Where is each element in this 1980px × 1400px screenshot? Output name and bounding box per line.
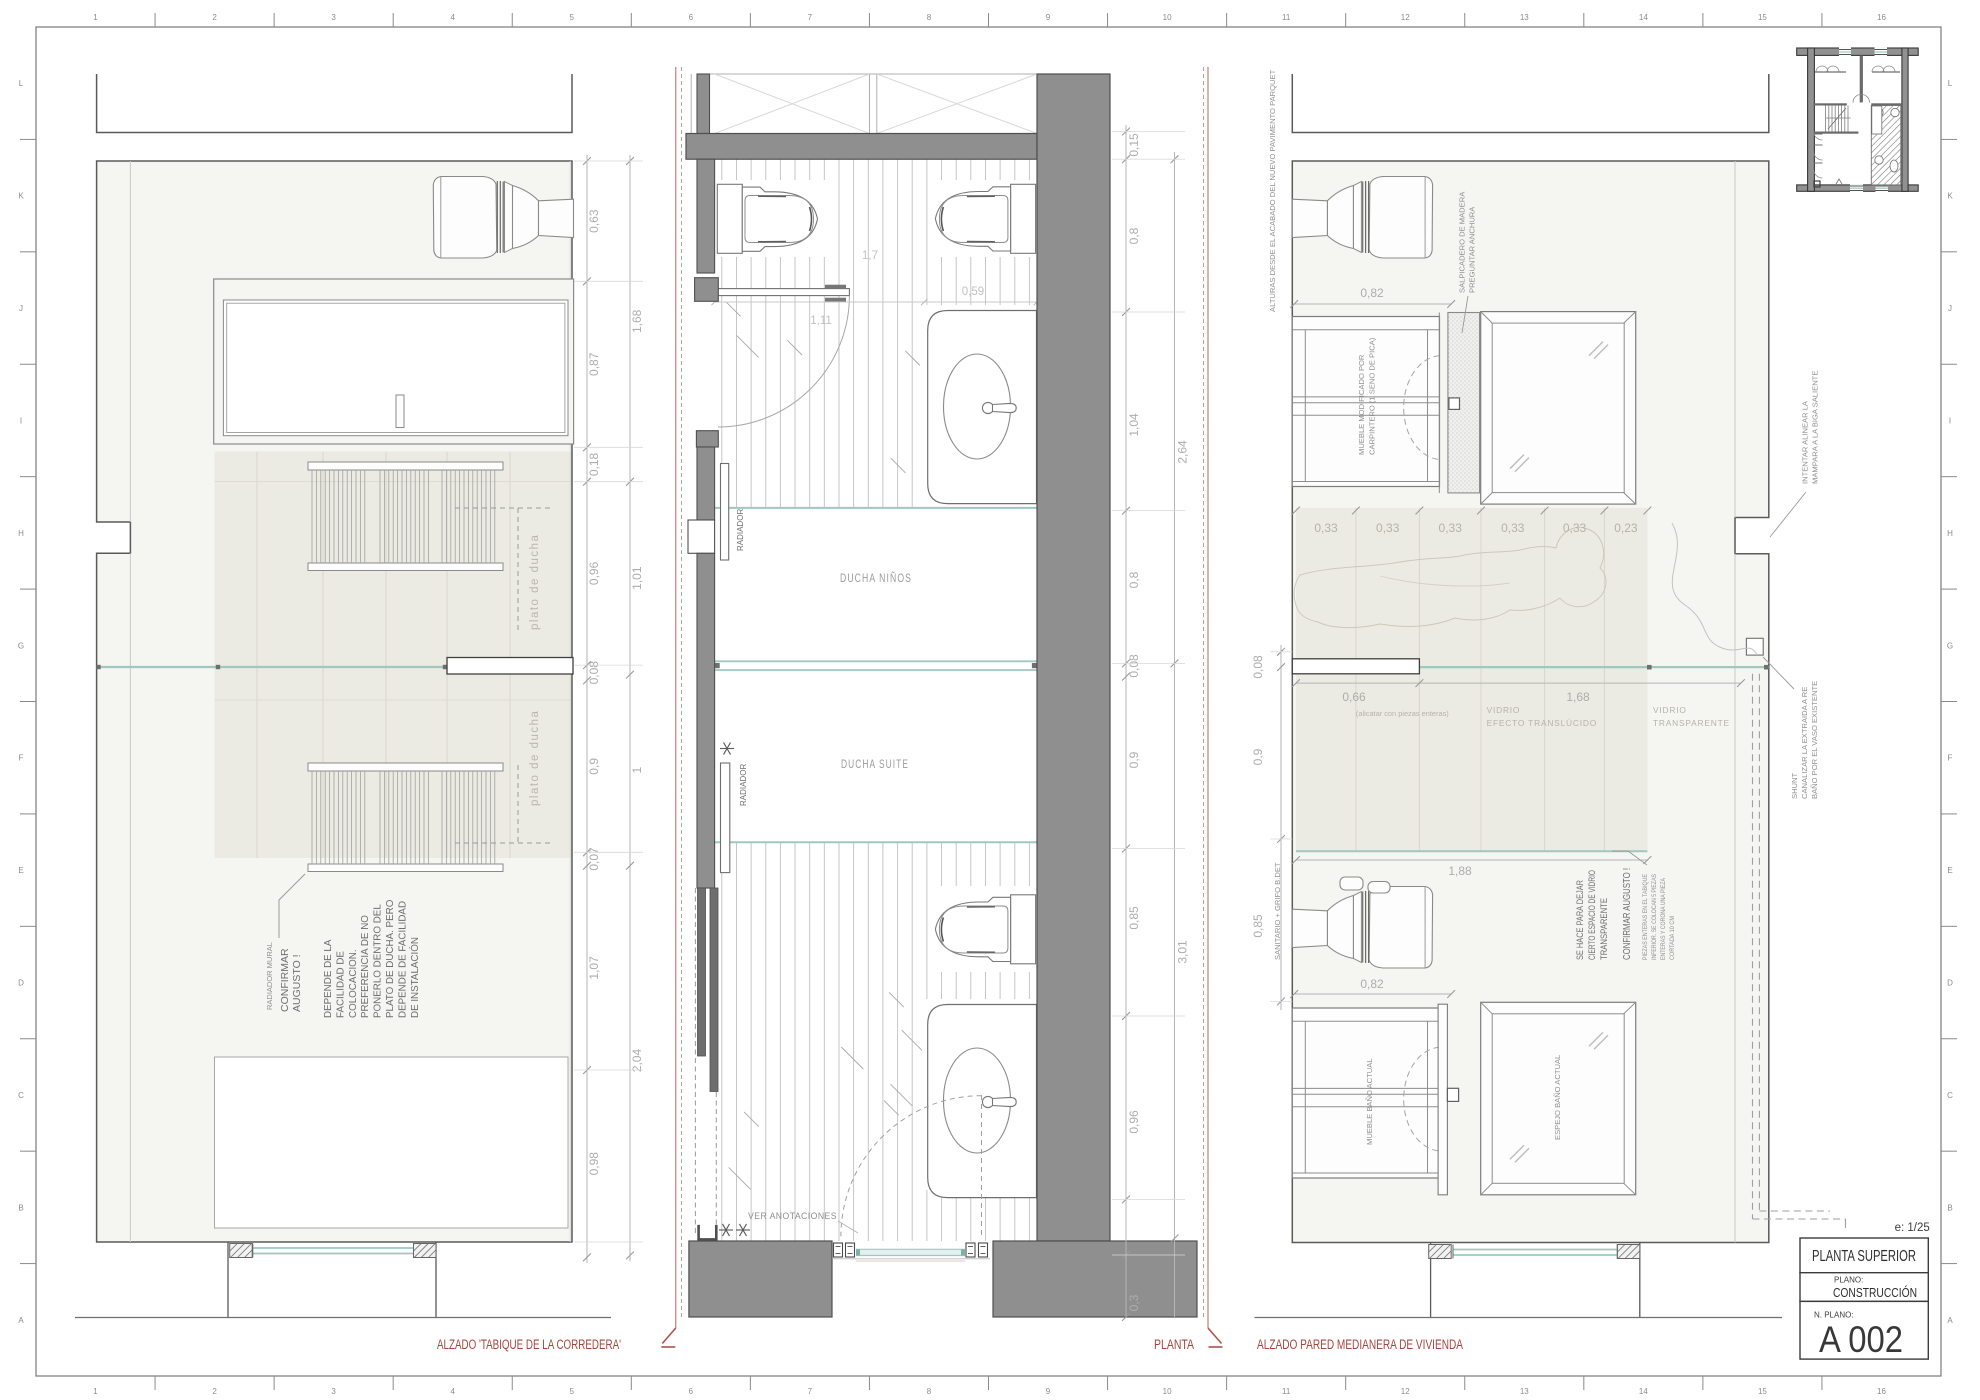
svg-text:RADIADOR: RADIADOR	[736, 509, 745, 551]
svg-text:1,11: 1,11	[810, 315, 832, 327]
svg-text:0,33: 0,33	[1563, 521, 1587, 535]
svg-text:0,87: 0,87	[587, 352, 601, 376]
svg-text:A: A	[1947, 1316, 1953, 1325]
svg-text:8: 8	[927, 13, 932, 22]
svg-text:0,82: 0,82	[1360, 977, 1384, 991]
svg-text:PLANTA SUPERIOR: PLANTA SUPERIOR	[1812, 1248, 1916, 1265]
svg-text:14: 14	[1639, 1387, 1648, 1396]
svg-text:1,88: 1,88	[1448, 864, 1472, 878]
svg-text:H: H	[18, 529, 24, 538]
svg-text:PREFERENCIA DE NO: PREFERENCIA DE NO	[360, 915, 371, 1018]
svg-text:1,7: 1,7	[862, 250, 878, 262]
svg-text:A: A	[18, 1316, 24, 1325]
svg-text:10: 10	[1163, 1387, 1172, 1396]
svg-text:DUCHA SUITE: DUCHA SUITE	[841, 757, 909, 771]
svg-text:E: E	[18, 866, 23, 875]
svg-text:7: 7	[808, 13, 813, 22]
svg-text:0,9: 0,9	[587, 758, 601, 775]
svg-text:0,33: 0,33	[1376, 521, 1400, 535]
svg-text:SHUNT: SHUNT	[1790, 772, 1799, 799]
svg-text:0,8: 0,8	[1127, 571, 1141, 588]
svg-text:E: E	[1947, 866, 1952, 875]
svg-text:13: 13	[1520, 13, 1529, 22]
svg-text:VIDRIO: VIDRIO	[1487, 705, 1521, 715]
svg-text:2,64: 2,64	[1176, 440, 1190, 464]
svg-text:12: 12	[1401, 13, 1410, 22]
svg-text:CARPINTERO (1 SENO DE PICA): CARPINTERO (1 SENO DE PICA)	[1368, 337, 1377, 455]
svg-text:MUEBLE MODIFICADO POR: MUEBLE MODIFICADO POR	[1357, 354, 1366, 455]
svg-text:1,68: 1,68	[1566, 690, 1590, 704]
svg-text:1,07: 1,07	[587, 956, 601, 980]
svg-text:H: H	[1947, 529, 1953, 538]
svg-text:D: D	[1947, 979, 1953, 988]
svg-text:DE INSTALACIÓN: DE INSTALACIÓN	[410, 937, 421, 1018]
svg-text:INTENTAR ALINEAR LA: INTENTAR ALINEAR LA	[1800, 400, 1809, 484]
svg-text:CORTADA 10 CM: CORTADA 10 CM	[1669, 916, 1676, 960]
svg-text:DEPENDE DE FACILIDAD: DEPENDE DE FACILIDAD	[397, 901, 408, 1018]
svg-text:13: 13	[1520, 1387, 1529, 1396]
svg-text:MAMPARA A LA BIGA SALIENTE: MAMPARA A LA BIGA SALIENTE	[1810, 371, 1819, 484]
svg-text:2: 2	[212, 1387, 217, 1396]
svg-text:0,9: 0,9	[1127, 751, 1141, 768]
svg-text:0,82: 0,82	[1360, 286, 1384, 300]
svg-text:5: 5	[570, 1387, 575, 1396]
svg-text:11: 11	[1282, 1387, 1291, 1396]
svg-text:G: G	[1947, 641, 1953, 650]
svg-text:CIERTO ESPACIO DE VIDRIO: CIERTO ESPACIO DE VIDRIO	[1587, 870, 1597, 960]
svg-text:0,85: 0,85	[1251, 914, 1265, 938]
svg-text:RADIADOR MURAL: RADIADOR MURAL	[265, 942, 274, 1010]
svg-text:PREGUNTAR ANCHURA: PREGUNTAR ANCHURA	[1468, 206, 1477, 293]
svg-text:9: 9	[1046, 13, 1051, 22]
svg-text:EFECTO TRANSLÚCIDO: EFECTO TRANSLÚCIDO	[1487, 718, 1597, 728]
svg-text:CONFIRMAR AUGUSTO !: CONFIRMAR AUGUSTO !	[1622, 868, 1633, 960]
svg-text:0,33: 0,33	[1439, 521, 1463, 535]
svg-text:C: C	[1947, 1091, 1953, 1100]
svg-text:plato de ducha: plato de ducha	[529, 710, 541, 806]
svg-text:0,59: 0,59	[962, 286, 984, 298]
svg-text:16: 16	[1877, 13, 1886, 22]
svg-text:MUEBLE BAÑO ACTUAL: MUEBLE BAÑO ACTUAL	[1365, 1058, 1374, 1145]
svg-text:PONERLO DENTRO DEL: PONERLO DENTRO DEL	[373, 904, 384, 1018]
svg-text:ALZADO PARED MEDIANERA DE VIVI: ALZADO PARED MEDIANERA DE VIVIENDA	[1257, 1337, 1463, 1352]
svg-text:9: 9	[1046, 1387, 1051, 1396]
svg-text:3: 3	[331, 13, 336, 22]
svg-text:11: 11	[1282, 13, 1291, 22]
svg-text:FACILIDAD DE: FACILIDAD DE	[335, 951, 346, 1018]
svg-text:PLANTA: PLANTA	[1154, 1337, 1194, 1352]
svg-text:0,96: 0,96	[587, 561, 601, 585]
svg-text:SANITARIO + GRIFO B.DET: SANITARIO + GRIFO B.DET	[1273, 862, 1282, 960]
svg-text:B: B	[1947, 1203, 1952, 1212]
svg-text:TRANSPARENTE: TRANSPARENTE	[1599, 898, 1609, 960]
svg-text:DEPENDE DE LA: DEPENDE DE LA	[323, 939, 334, 1018]
svg-text:0,23: 0,23	[1614, 521, 1638, 535]
svg-text:CONFIRMAR: CONFIRMAR	[279, 948, 291, 1012]
svg-text:L: L	[1948, 79, 1953, 88]
svg-text:2,04: 2,04	[630, 1049, 644, 1073]
svg-text:0,07: 0,07	[587, 847, 601, 871]
svg-text:3,01: 3,01	[1176, 940, 1190, 964]
svg-text:D: D	[18, 979, 24, 988]
svg-text:J: J	[1948, 304, 1952, 313]
svg-text:0,9: 0,9	[1251, 748, 1265, 765]
svg-text:COLOCACION.: COLOCACION.	[348, 949, 359, 1018]
svg-text:PLANO:: PLANO:	[1834, 1276, 1863, 1285]
svg-text:B: B	[18, 1203, 23, 1212]
svg-text:BAÑO POR EL VASO EXISTENTE: BAÑO POR EL VASO EXISTENTE	[1810, 681, 1819, 799]
svg-text:3: 3	[331, 1387, 336, 1396]
svg-text:ENTERAS Y CORONA UNA PIEZA: ENTERAS Y CORONA UNA PIEZA	[1660, 878, 1667, 960]
svg-text:0,08: 0,08	[1127, 654, 1141, 678]
svg-text:12: 12	[1401, 1387, 1410, 1396]
svg-text:0,66: 0,66	[1342, 690, 1366, 704]
svg-text:G: G	[18, 641, 24, 650]
svg-text:K: K	[18, 192, 24, 201]
svg-text:14: 14	[1639, 13, 1648, 22]
svg-text:5: 5	[570, 13, 575, 22]
svg-text:DUCHA NIÑOS: DUCHA NIÑOS	[840, 571, 912, 585]
svg-text:2: 2	[212, 13, 217, 22]
svg-text:1: 1	[93, 13, 98, 22]
svg-text:ALZADO 'TABIQUE DE LA CORREDER: ALZADO 'TABIQUE DE LA CORREDERA'	[437, 1337, 621, 1352]
svg-text:1,68: 1,68	[630, 309, 644, 333]
svg-text:e: 1/25: e: 1/25	[1895, 1222, 1930, 1234]
svg-text:6: 6	[689, 13, 694, 22]
svg-text:0,8: 0,8	[1127, 227, 1141, 244]
svg-text:0,85: 0,85	[1127, 906, 1141, 930]
svg-text:ESPEJO BAÑO ACTUAL: ESPEJO BAÑO ACTUAL	[1553, 1055, 1562, 1140]
svg-text:I: I	[1949, 416, 1951, 425]
svg-text:0,18: 0,18	[587, 452, 601, 476]
svg-text:1: 1	[93, 1387, 98, 1396]
svg-text:0,63: 0,63	[587, 209, 601, 233]
svg-text:PIEZAS ENTERAS EN EL TABIQUE: PIEZAS ENTERAS EN EL TABIQUE	[1642, 874, 1649, 960]
svg-text:C: C	[18, 1091, 24, 1100]
svg-text:8: 8	[927, 1387, 932, 1396]
svg-text:7: 7	[808, 1387, 813, 1396]
svg-text:PLATO DE DUCHA. PERO: PLATO DE DUCHA. PERO	[385, 899, 396, 1018]
svg-text:J: J	[19, 304, 23, 313]
svg-text:4: 4	[450, 13, 455, 22]
svg-text:1: 1	[630, 766, 644, 773]
svg-text:0,98: 0,98	[587, 1152, 601, 1176]
svg-text:16: 16	[1877, 1387, 1886, 1396]
svg-text:4: 4	[450, 1387, 455, 1396]
svg-text:0,33: 0,33	[1314, 521, 1338, 535]
svg-text:10: 10	[1163, 13, 1172, 22]
svg-text:I: I	[20, 416, 22, 425]
svg-text:1,01: 1,01	[630, 566, 644, 590]
svg-text:L: L	[19, 79, 24, 88]
svg-text:0,96: 0,96	[1127, 1110, 1141, 1134]
svg-text:INFERIOR. SE COLOCAN 5 PIEZAS: INFERIOR. SE COLOCAN 5 PIEZAS	[1651, 874, 1658, 960]
svg-text:0,33: 0,33	[1501, 521, 1525, 535]
svg-text:ALTURAS DESDE EL ACABADO DEL N: ALTURAS DESDE EL ACABADO DEL NUEVO PAVIM…	[1268, 69, 1277, 312]
svg-text:SALPICADERO DE MADERA: SALPICADERO DE MADERA	[1458, 191, 1467, 293]
svg-text:CANALIZAR LA EXTRAIDA A RE: CANALIZAR LA EXTRAIDA A RE	[1800, 687, 1809, 799]
svg-text:F: F	[1948, 754, 1953, 763]
svg-text:0,15: 0,15	[1127, 133, 1141, 157]
svg-text:CONSTRUCCIÓN: CONSTRUCCIÓN	[1833, 1285, 1917, 1300]
svg-text:F: F	[19, 754, 24, 763]
svg-text:0,08: 0,08	[587, 661, 601, 685]
svg-text:1,04: 1,04	[1127, 413, 1141, 437]
svg-text:0,3: 0,3	[1127, 1294, 1141, 1311]
svg-text:15: 15	[1758, 1387, 1767, 1396]
svg-text:K: K	[1947, 192, 1953, 201]
svg-text:VER ANOTACIONES: VER ANOTACIONES	[748, 1211, 837, 1222]
svg-text:SE HACE PARA DEJAR: SE HACE PARA DEJAR	[1575, 880, 1585, 960]
svg-text:AUGUSTO !: AUGUSTO !	[291, 954, 303, 1012]
svg-text:(alicatar con piezas enteras): (alicatar con piezas enteras)	[1356, 709, 1449, 718]
svg-text:plato de ducha: plato de ducha	[529, 534, 541, 630]
svg-text:TRANSPARENTE: TRANSPARENTE	[1653, 718, 1730, 728]
svg-text:RADIADOR: RADIADOR	[739, 764, 748, 806]
svg-text:6: 6	[689, 1387, 694, 1396]
svg-text:15: 15	[1758, 13, 1767, 22]
svg-text:VIDRIO: VIDRIO	[1653, 705, 1687, 715]
svg-text:0,08: 0,08	[1251, 655, 1265, 679]
svg-text:A 002: A 002	[1819, 1319, 1903, 1360]
